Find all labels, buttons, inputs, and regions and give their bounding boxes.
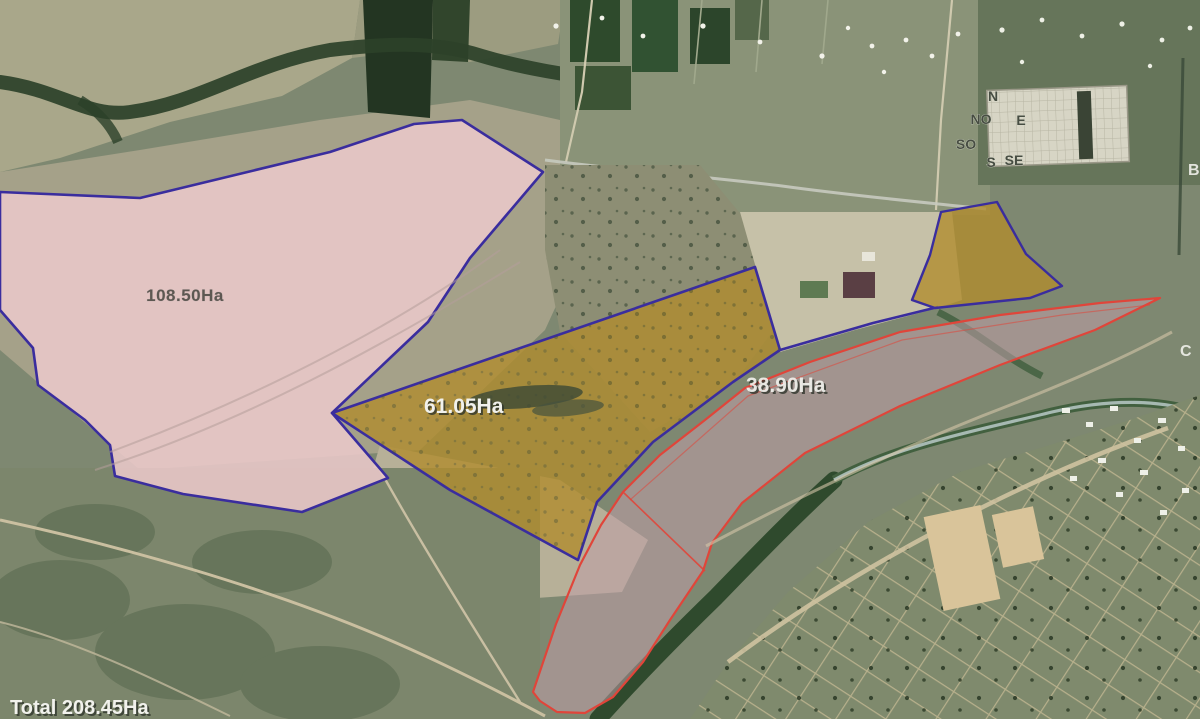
compass-n: N: [988, 88, 998, 104]
satellite-map: 108.50Ha 61.05Ha 61.05Ha 38.90Ha 38.90Ha…: [0, 0, 1200, 719]
edge-letter-b: B: [1188, 162, 1200, 179]
compass-no: NO: [971, 111, 992, 127]
compass-so: SO: [956, 136, 976, 152]
compass-e: E: [1016, 112, 1025, 128]
total-area-label: Total 208.45Ha: [10, 697, 149, 719]
edge-letter-c: C: [1180, 343, 1192, 360]
compass-s: S: [986, 154, 995, 170]
parcel-1-area-label: 108.50Ha: [146, 286, 224, 305]
parcel-2-area-label: 61.05Ha: [424, 395, 504, 418]
map-canvas: 108.50Ha 61.05Ha 61.05Ha 38.90Ha 38.90Ha…: [0, 0, 1200, 719]
compass-se: SE: [1005, 152, 1024, 168]
parcel-3-area-label: 38.90Ha: [746, 374, 826, 397]
